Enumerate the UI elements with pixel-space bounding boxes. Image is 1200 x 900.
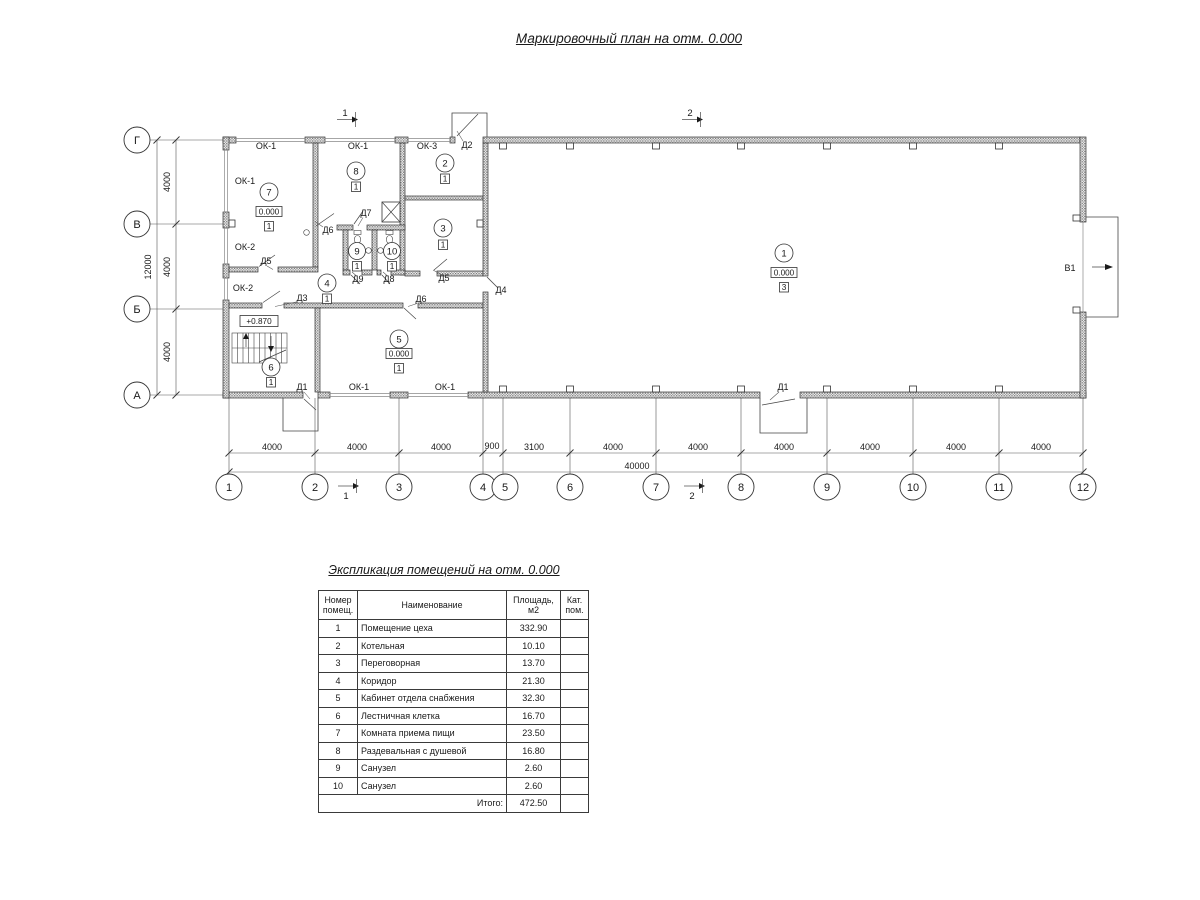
room-area: 2.60: [507, 777, 561, 795]
column-header-number: Номер помещ.: [319, 591, 358, 620]
room-name: Комната приема пищи: [358, 725, 507, 743]
total-value: 472.50: [507, 795, 561, 813]
gate-v1: В1: [1064, 217, 1118, 317]
door-label: Д7: [360, 208, 371, 218]
grid-number: 5: [502, 482, 508, 494]
room-cat: [561, 777, 589, 795]
room-num: 6: [319, 707, 358, 725]
window-label: ОК-1: [348, 141, 368, 151]
room-elevation: 0.000: [774, 269, 795, 278]
dim-label: 4000: [347, 442, 367, 452]
room-elevation: 0.000: [259, 208, 280, 217]
room-elevation: 0.000: [389, 350, 410, 359]
grid-number: 10: [907, 482, 919, 494]
dim-label: 4000: [162, 342, 172, 362]
door-label: Д2: [461, 140, 472, 150]
dim-label: 4000: [688, 442, 708, 452]
door-label: Д9: [352, 274, 363, 284]
window-label: ОК-1: [256, 141, 276, 151]
room-area: 2.60: [507, 760, 561, 778]
grid-number: 4: [480, 482, 486, 494]
column-header-category: Кат. пом.: [561, 591, 589, 620]
section-mark-label: 1: [343, 491, 348, 502]
room-number: 7: [266, 188, 271, 199]
stair-elevation: +0.870: [246, 317, 272, 326]
section-mark-label: 2: [687, 108, 692, 119]
room-area: 10.10: [507, 637, 561, 655]
section-mark-label: 2: [689, 491, 694, 502]
dim-label: 4000: [262, 442, 282, 452]
room-category: 1: [267, 222, 272, 231]
doors: [259, 114, 795, 410]
room-category: 1: [443, 175, 448, 184]
room-area: 332.90: [507, 620, 561, 638]
room-markers: 1 0.000 3 2 1 3 1 4 1 5 0.000 1 6 1 7 0.…: [256, 154, 797, 387]
room-cat: [561, 620, 589, 638]
column-header-name: Наименование: [358, 591, 507, 620]
room-num: 1: [319, 620, 358, 638]
room-cat: [561, 690, 589, 708]
dim-total-label: 40000: [624, 461, 649, 471]
dim-label: 4000: [162, 172, 172, 192]
room-num: 2: [319, 637, 358, 655]
room-name: Котельная: [358, 637, 507, 655]
grid-number: 2: [312, 482, 318, 494]
room-number: 3: [440, 224, 445, 235]
table-row: 7Комната приема пищи23.50: [319, 725, 589, 743]
door-label: Д6: [322, 225, 333, 235]
dim-label: 4000: [603, 442, 623, 452]
dim-label: 4000: [1031, 442, 1051, 452]
room-area: 16.70: [507, 707, 561, 725]
grid-number: 7: [653, 482, 659, 494]
room-cat: [561, 672, 589, 690]
room-number: 8: [353, 167, 358, 178]
dim-label: 900: [484, 441, 499, 451]
table-header-row: Номер помещ. Наименование Площадь, м2 Ка…: [319, 591, 589, 620]
room-num: 8: [319, 742, 358, 760]
table-title: Экспликация помещений на отм. 0.000: [318, 563, 570, 577]
room-name: Раздевальная с душевой: [358, 742, 507, 760]
door-label: Д1: [777, 382, 788, 392]
total-label: Итого:: [319, 795, 507, 813]
door-label: Д8: [383, 274, 394, 284]
grid-number: 9: [824, 482, 830, 494]
room-area: 21.30: [507, 672, 561, 690]
room-num: 3: [319, 655, 358, 673]
dim-label: 4000: [162, 257, 172, 277]
room-num: 9: [319, 760, 358, 778]
room-area: 23.50: [507, 725, 561, 743]
door-label: Д5: [438, 273, 449, 283]
room-name: Санузел: [358, 760, 507, 778]
room-cat: [561, 637, 589, 655]
grid-number: 6: [567, 482, 573, 494]
total-cat: [561, 795, 589, 813]
axis-letter: В: [133, 219, 140, 231]
room-num: 4: [319, 672, 358, 690]
room-number: 2: [442, 159, 447, 170]
drawing-sheet: Маркировочный план на отм. 0.000: [0, 0, 1200, 900]
grid-number: 11: [993, 482, 1004, 494]
grid-number: 3: [396, 482, 402, 494]
dim-label: 4000: [946, 442, 966, 452]
table-row: 4Коридор21.30: [319, 672, 589, 690]
room-schedule-table: Номер помещ. Наименование Площадь, м2 Ка…: [318, 590, 589, 813]
window-label: ОК-2: [235, 242, 255, 252]
grid-number: 12: [1077, 482, 1089, 494]
room-name: Коридор: [358, 672, 507, 690]
axis-letter: Г: [134, 135, 140, 147]
grid-number: 8: [738, 482, 744, 494]
section-mark-label: 1: [342, 108, 347, 119]
door-label: Д6: [415, 294, 426, 304]
dim-label: 4000: [431, 442, 451, 452]
room-category: 3: [782, 283, 787, 292]
door-labels: Д2 Д7 Д6 Д5 Д3 Д9 Д8 Д5 Д4 Д6 Д1 Д1: [260, 140, 788, 392]
room-num: 7: [319, 725, 358, 743]
dim-total-label: 12000: [143, 254, 153, 279]
room-name: Санузел: [358, 777, 507, 795]
table-row: 6Лестничная клетка16.70: [319, 707, 589, 725]
room-category: 1: [390, 262, 395, 271]
room-category: 1: [441, 241, 446, 250]
window-label: ОК-3: [417, 141, 437, 151]
room-num: 10: [319, 777, 358, 795]
table-row: 2Котельная10.10: [319, 637, 589, 655]
stairs: +0.870: [232, 316, 287, 364]
dim-label: 4000: [860, 442, 880, 452]
axis-letter: Б: [133, 304, 140, 316]
room-area: 32.30: [507, 690, 561, 708]
window-label: ОК-1: [435, 382, 455, 392]
table-row: 8Раздевальная с душевой16.80: [319, 742, 589, 760]
gate-label: В1: [1064, 263, 1075, 273]
room-number: 1: [781, 249, 786, 260]
room-name: Переговорная: [358, 655, 507, 673]
room-name: Помещение цеха: [358, 620, 507, 638]
floor-plan: 4000 4000 4000 900 3100 4000 4000 4000 4…: [0, 0, 1200, 555]
door-label: Д5: [260, 256, 271, 266]
window-label: ОК-1: [235, 176, 255, 186]
column-header-area: Площадь, м2: [507, 591, 561, 620]
room-cat: [561, 655, 589, 673]
room-category: 1: [397, 364, 402, 373]
room-name: Кабинет отдела снабжения: [358, 690, 507, 708]
door-label: Д3: [296, 293, 307, 303]
table-row: 10Санузел2.60: [319, 777, 589, 795]
room-area: 16.80: [507, 742, 561, 760]
table-row: 5Кабинет отдела снабжения32.30: [319, 690, 589, 708]
room-category: 1: [325, 295, 330, 304]
room-category: 1: [354, 183, 359, 192]
room-number: 5: [396, 335, 401, 346]
table-row: 9Санузел2.60: [319, 760, 589, 778]
window-label: ОК-2: [233, 283, 253, 293]
room-area: 13.70: [507, 655, 561, 673]
dim-label: 3100: [524, 442, 544, 452]
room-number: 6: [268, 363, 273, 374]
grid-number: 1: [226, 482, 232, 494]
door-label: Д1: [296, 382, 307, 392]
room-name: Лестничная клетка: [358, 707, 507, 725]
room-cat: [561, 760, 589, 778]
dim-label: 4000: [774, 442, 794, 452]
room-number: 9: [354, 247, 359, 258]
door-label: Д4: [495, 285, 506, 295]
table-row: 1Помещение цеха332.90: [319, 620, 589, 638]
table-row: 3Переговорная13.70: [319, 655, 589, 673]
room-category: 1: [269, 378, 274, 387]
room-number: 4: [324, 279, 329, 290]
axis-letter: А: [133, 390, 141, 402]
window-label: ОК-1: [349, 382, 369, 392]
room-cat: [561, 742, 589, 760]
room-cat: [561, 725, 589, 743]
room-number: 10: [387, 247, 398, 258]
room-category: 1: [355, 262, 360, 271]
room-num: 5: [319, 690, 358, 708]
table-total-row: Итого: 472.50: [319, 795, 589, 813]
room-cat: [561, 707, 589, 725]
